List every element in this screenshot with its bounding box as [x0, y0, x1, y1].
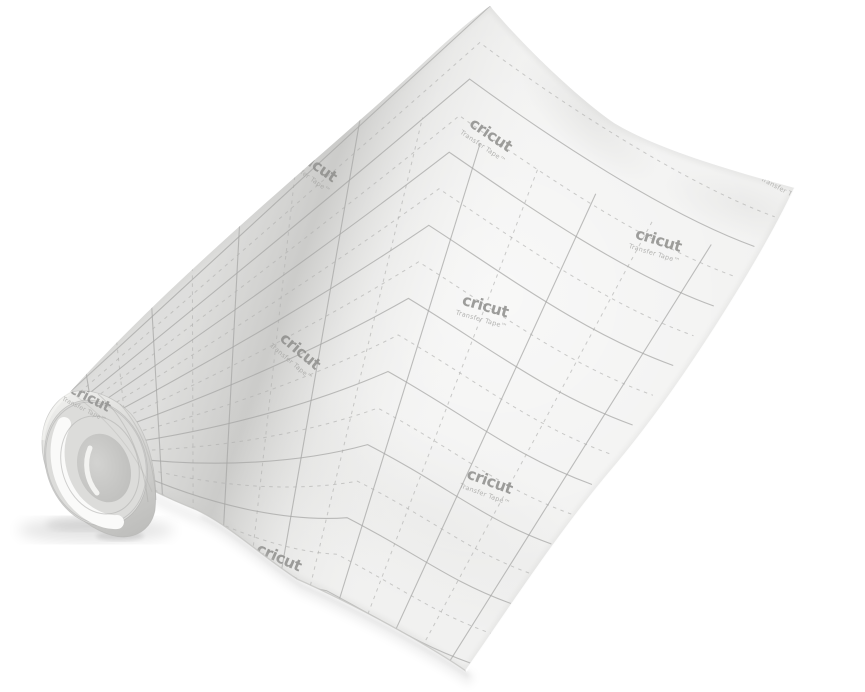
product-photo: cricutTransfer Tape™cricutTransfer Tape™…: [0, 0, 865, 692]
tape-sheet: cricutTransfer Tape™cricutTransfer Tape™…: [0, 0, 865, 692]
transfer-tape-illustration: cricutTransfer Tape™cricutTransfer Tape™…: [0, 0, 865, 692]
